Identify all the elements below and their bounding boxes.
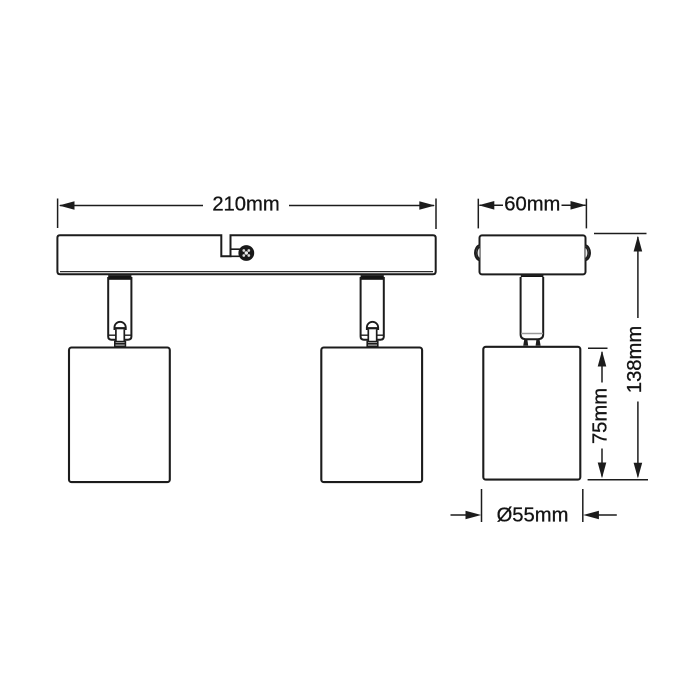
svg-text:210mm: 210mm [212, 194, 279, 216]
svg-text:60mm: 60mm [504, 193, 560, 215]
svg-text:138mm: 138mm [624, 326, 646, 393]
svg-text:75mm: 75mm [590, 388, 612, 444]
svg-text:Ø55mm: Ø55mm [497, 505, 569, 527]
